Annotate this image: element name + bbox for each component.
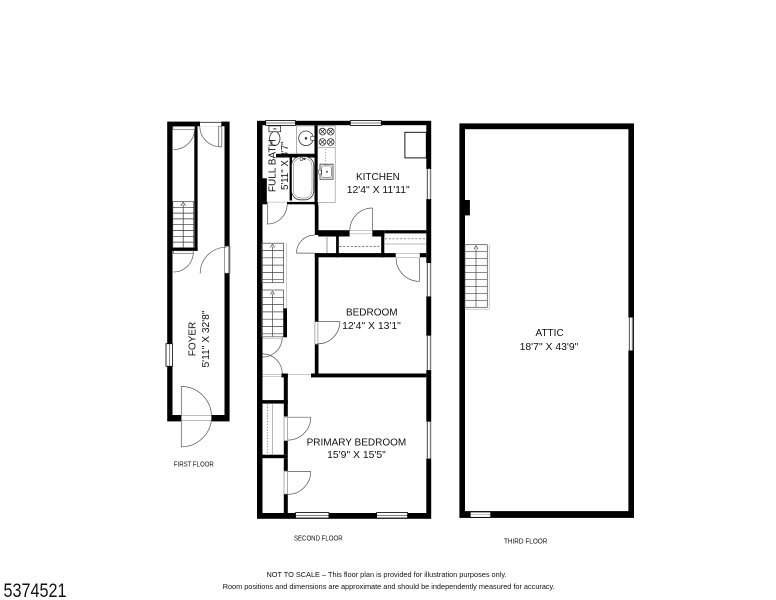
svg-text:18'7" X 43'9": 18'7" X 43'9" bbox=[520, 342, 579, 353]
svg-text:FOYER: FOYER bbox=[188, 322, 199, 356]
svg-text:BEDROOM: BEDROOM bbox=[346, 308, 398, 319]
svg-text:5'11" X 8'7": 5'11" X 8'7" bbox=[280, 141, 291, 190]
svg-text:ATTIC: ATTIC bbox=[536, 328, 564, 339]
svg-text:12'4" X 13'1": 12'4" X 13'1" bbox=[342, 321, 401, 332]
svg-text:12'4" X 11'11": 12'4" X 11'11" bbox=[347, 185, 410, 196]
svg-text:THIRD FLOOR: THIRD FLOOR bbox=[504, 536, 548, 545]
svg-text:SECOND FLOOR: SECOND FLOOR bbox=[294, 534, 343, 543]
svg-text:5374521: 5374521 bbox=[4, 580, 67, 600]
svg-text:NOT TO SCALE – This floor plan: NOT TO SCALE – This floor plan is provid… bbox=[267, 570, 507, 579]
svg-text:Room positions and dimensions: Room positions and dimensions are approx… bbox=[223, 582, 555, 591]
svg-text:5'11" X 32'8": 5'11" X 32'8" bbox=[201, 310, 212, 367]
svg-text:15'9" X 15'5": 15'9" X 15'5" bbox=[327, 450, 386, 461]
svg-text:FIRST FLOOR: FIRST FLOOR bbox=[174, 459, 214, 468]
svg-text:PRIMARY BEDROOM: PRIMARY BEDROOM bbox=[307, 438, 407, 449]
svg-text:FULL BATH: FULL BATH bbox=[268, 139, 279, 192]
svg-text:KITCHEN: KITCHEN bbox=[356, 172, 400, 183]
